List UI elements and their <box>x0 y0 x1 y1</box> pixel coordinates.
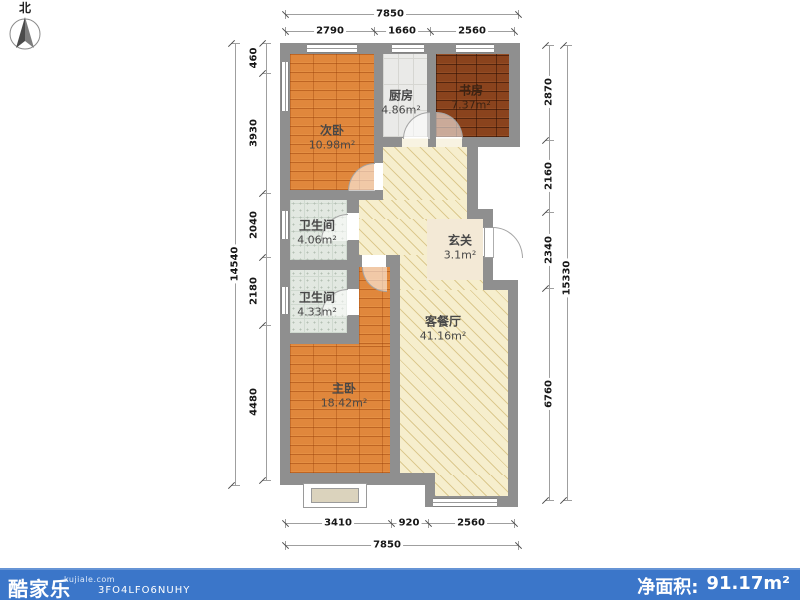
wall <box>347 200 359 213</box>
dim-tick <box>428 519 429 528</box>
window <box>307 44 357 53</box>
door-arc-entry <box>493 227 523 258</box>
dim-top-total: 7850 <box>374 9 406 20</box>
north-indicator: 北 <box>6 2 44 56</box>
plan-code: 3FO4LFO6NUHY <box>98 585 190 596</box>
net-area: 净面积: 91.17m² <box>637 573 790 599</box>
room-label-entry-hall: 玄关 3.1m² <box>444 232 477 263</box>
floor-plan-page: 北 <box>0 0 800 600</box>
net-area-value: 91.17m² <box>706 573 790 599</box>
dim-top-seg2: 2560 <box>456 26 488 37</box>
dim-left-total: 14540 <box>230 245 241 284</box>
room-label-bath1: 卫生间 4.06m² <box>297 217 337 248</box>
wall <box>509 43 520 147</box>
dim-tick <box>374 27 375 36</box>
dim-tick <box>514 27 515 36</box>
dim-tick <box>262 257 271 258</box>
wall <box>347 255 362 267</box>
wall <box>467 137 478 219</box>
dim-tick <box>545 140 554 141</box>
footer-bar: 酷家乐 kujiale.com 3FO4LFO6NUHY 净面积: 91.17m… <box>0 568 800 600</box>
dim-tick <box>262 480 271 481</box>
dim-tick <box>545 288 554 289</box>
door-bath1 <box>347 213 359 240</box>
dim-line <box>266 43 267 480</box>
dim-tick <box>262 325 271 326</box>
dim-left-seg2: 2040 <box>249 209 260 241</box>
bay-window-inner <box>311 488 359 503</box>
dim-bottom-seg2: 2560 <box>455 518 487 529</box>
dim-tick <box>563 45 572 46</box>
compass-icon <box>7 14 43 52</box>
dim-bottom-seg1: 920 <box>397 518 422 529</box>
dim-tick <box>545 500 554 501</box>
dim-tick <box>430 27 431 36</box>
dim-tick <box>262 73 271 74</box>
dim-right-seg3: 6760 <box>544 378 555 410</box>
wall <box>478 209 493 219</box>
room-label-kitchen: 厨房 4.86m² <box>381 87 421 118</box>
room-label-study: 书房 7.37m² <box>451 82 491 113</box>
door-master-bedroom <box>362 255 386 267</box>
wall <box>508 280 518 507</box>
brand-logo: 酷家乐 <box>8 573 71 600</box>
dim-tick <box>262 43 271 44</box>
brand-site: kujiale.com <box>64 575 115 584</box>
dim-tick <box>391 519 392 528</box>
dim-right-seg2: 2340 <box>544 234 555 266</box>
door-kitchen <box>402 138 428 147</box>
floor-living <box>435 475 508 496</box>
dim-right-total: 15330 <box>562 259 573 298</box>
dim-left-seg3: 2180 <box>249 275 260 307</box>
floor-living <box>359 200 467 219</box>
room-label-bath2: 卫生间 4.33m² <box>297 289 337 320</box>
door-study <box>436 138 462 147</box>
dim-left-seg0: 460 <box>249 46 260 71</box>
net-area-label: 净面积: <box>637 573 698 599</box>
wall <box>374 137 403 147</box>
dim-tick <box>231 485 240 486</box>
dim-tick <box>285 519 286 528</box>
wall <box>390 255 400 480</box>
room-label-bedroom2: 次卧 10.98m² <box>309 122 356 153</box>
dim-left-seg4: 4480 <box>249 386 260 418</box>
window <box>281 287 289 314</box>
dim-top-seg0: 2790 <box>314 26 346 37</box>
dim-tick <box>563 500 572 501</box>
dim-tick <box>285 541 286 550</box>
window <box>392 44 424 53</box>
wall <box>280 333 359 344</box>
dim-tick <box>545 212 554 213</box>
dim-left-seg1: 3930 <box>249 117 260 149</box>
dim-bottom-total: 7850 <box>371 540 403 551</box>
door-bedroom2 <box>374 163 383 190</box>
dim-tick <box>514 519 515 528</box>
window <box>433 498 497 507</box>
dim-tick <box>518 10 519 19</box>
wall <box>280 190 383 200</box>
north-label: 北 <box>6 2 44 14</box>
dim-tick <box>518 541 519 550</box>
dim-tick <box>545 45 554 46</box>
floor-living-corridor <box>383 147 467 200</box>
dim-bottom-seg0: 3410 <box>322 518 354 529</box>
dim-line <box>549 45 550 500</box>
window <box>456 44 494 53</box>
window <box>281 62 289 111</box>
door-bath2 <box>347 289 359 315</box>
dim-tick <box>262 193 271 194</box>
room-label-master-bedroom: 主卧 18.42m² <box>321 380 368 411</box>
wall <box>280 260 357 270</box>
dim-tick <box>285 27 286 36</box>
room-label-living-dining: 客餐厅 41.16m² <box>420 313 467 344</box>
dim-tick <box>231 43 240 44</box>
dim-top-seg1: 1660 <box>386 26 418 37</box>
dim-tick <box>285 10 286 19</box>
window <box>281 211 289 239</box>
dim-right-seg0: 2870 <box>544 76 555 108</box>
dim-right-seg1: 2160 <box>544 160 555 192</box>
